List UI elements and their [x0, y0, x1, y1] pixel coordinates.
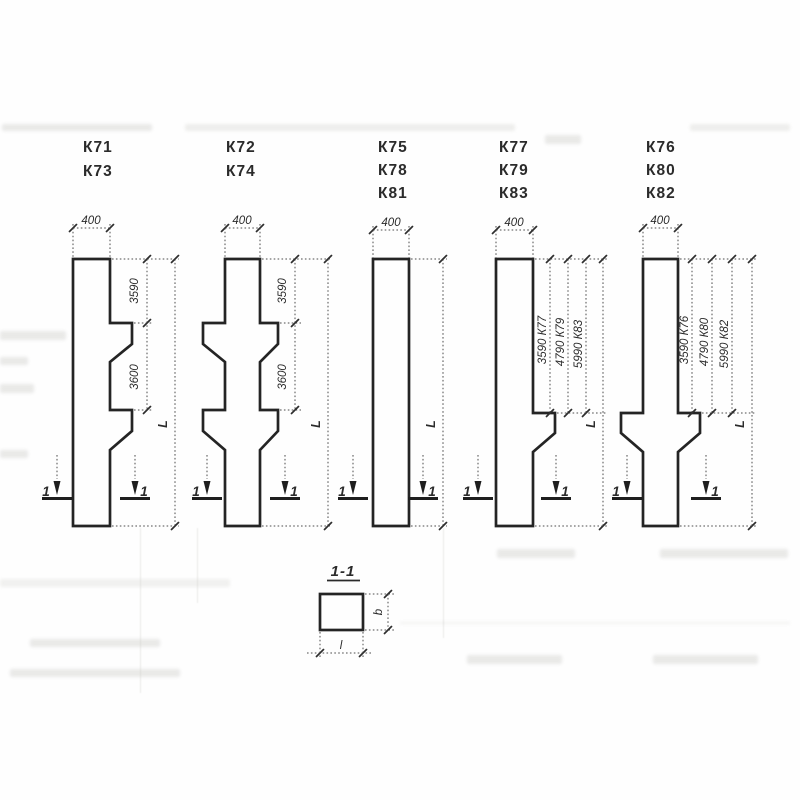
section-cut-marker: 1 [338, 455, 368, 499]
section-view-1-1: 1-1 b l [307, 563, 394, 658]
column-k77-k79-k83: К77 К79 К83 400 3590 К77 4790 К79 5990 К… [463, 139, 607, 530]
column-outline [621, 259, 700, 526]
dimension-ticks [640, 225, 756, 530]
column-mark-label: К77 [499, 139, 529, 156]
column-k76-k80-k82: К76 К80 К82 400 3590 К76 4790 К80 5990 К… [612, 139, 756, 530]
column-outline [373, 259, 409, 526]
dimension-ticks [70, 225, 179, 530]
section-cut-number: 1 [612, 484, 620, 499]
height-dim-label: 3600 [129, 364, 141, 390]
length-dim-label: L [156, 420, 170, 428]
height-dim-label: 5990 К82 [719, 319, 731, 368]
column-outline [496, 259, 555, 526]
column-mark-label: К74 [226, 163, 256, 180]
length-dim-label: L [309, 420, 323, 428]
length-dim-label: L [584, 420, 598, 428]
section-cut-marker: 1 [270, 455, 300, 499]
section-cut-number: 1 [463, 484, 471, 499]
section-cut-number: 1 [711, 484, 719, 499]
length-dim-label: L [733, 420, 747, 428]
dimension-lines [643, 224, 756, 526]
height-dim-label: 3600 [277, 364, 289, 390]
column-mark-label: К78 [378, 162, 408, 179]
column-k72-k74: К72 К74 400 3590 3600 L 1 1 [192, 139, 332, 530]
height-dim-label: 4790 К80 [699, 317, 711, 366]
section-height-label: b [373, 608, 385, 615]
section-cut-number: 1 [561, 484, 569, 499]
column-mark-label: К79 [499, 162, 529, 179]
column-mark-label: К80 [646, 162, 676, 179]
section-cut-marker: 1 [612, 455, 642, 499]
height-dim-label: 3590 [129, 278, 141, 304]
scanned-drawing-sheet: К71 К73 400 3590 3600 L 1 1 К [0, 0, 800, 800]
section-cut-marker: 1 [120, 455, 150, 499]
section-cut-number: 1 [42, 484, 50, 499]
section-cut-number: 1 [192, 484, 200, 499]
column-mark-label: К75 [378, 139, 408, 156]
column-mark-label: К72 [226, 139, 256, 156]
section-cut-marker: 1 [42, 455, 72, 499]
column-mark-label: К71 [83, 139, 113, 156]
section-cut-marker: 1 [691, 455, 721, 499]
column-k71-k73: К71 К73 400 3590 3600 L 1 1 [42, 139, 179, 530]
section-cut-number: 1 [428, 484, 436, 499]
column-mark-label: К73 [83, 163, 113, 180]
column-mark-label: К76 [646, 139, 676, 156]
column-elevation-drawing: К71 К73 400 3590 3600 L 1 1 К [0, 0, 800, 800]
height-dim-label: 3590 К77 [537, 315, 549, 364]
section-cut-number: 1 [140, 484, 148, 499]
length-dim-label: L [424, 420, 438, 428]
width-dim-label: 400 [381, 217, 401, 229]
column-mark-label: К81 [378, 185, 408, 202]
dimension-ticks [317, 591, 392, 657]
width-dim-label: 400 [232, 215, 252, 227]
dimension-lines [496, 226, 607, 526]
section-cut-number: 1 [338, 484, 346, 499]
section-cut-marker: 1 [408, 455, 438, 499]
height-dim-label: 5990 К83 [573, 319, 585, 368]
width-dim-label: 400 [504, 217, 524, 229]
section-cut-number: 1 [290, 484, 298, 499]
height-dim-label: 4790 К79 [555, 317, 567, 366]
column-mark-label: К82 [646, 185, 676, 202]
height-dim-label: 3590 [277, 278, 289, 304]
column-mark-label: К83 [499, 185, 529, 202]
width-dim-label: 400 [650, 215, 670, 227]
column-outline [73, 259, 132, 526]
section-cut-marker: 1 [192, 455, 222, 499]
section-cut-marker: 1 [463, 455, 493, 499]
column-k75-k78-k81: К75 К78 К81 400 L 1 1 [338, 139, 447, 530]
section-cut-marker: 1 [541, 455, 571, 499]
column-outline [203, 259, 278, 526]
section-view-title: 1-1 [331, 563, 356, 580]
height-dim-label: 3590 К76 [679, 315, 691, 364]
dimension-lines [73, 224, 179, 526]
section-width-label: l [340, 640, 343, 652]
width-dim-label: 400 [81, 215, 101, 227]
section-profile [320, 594, 363, 630]
